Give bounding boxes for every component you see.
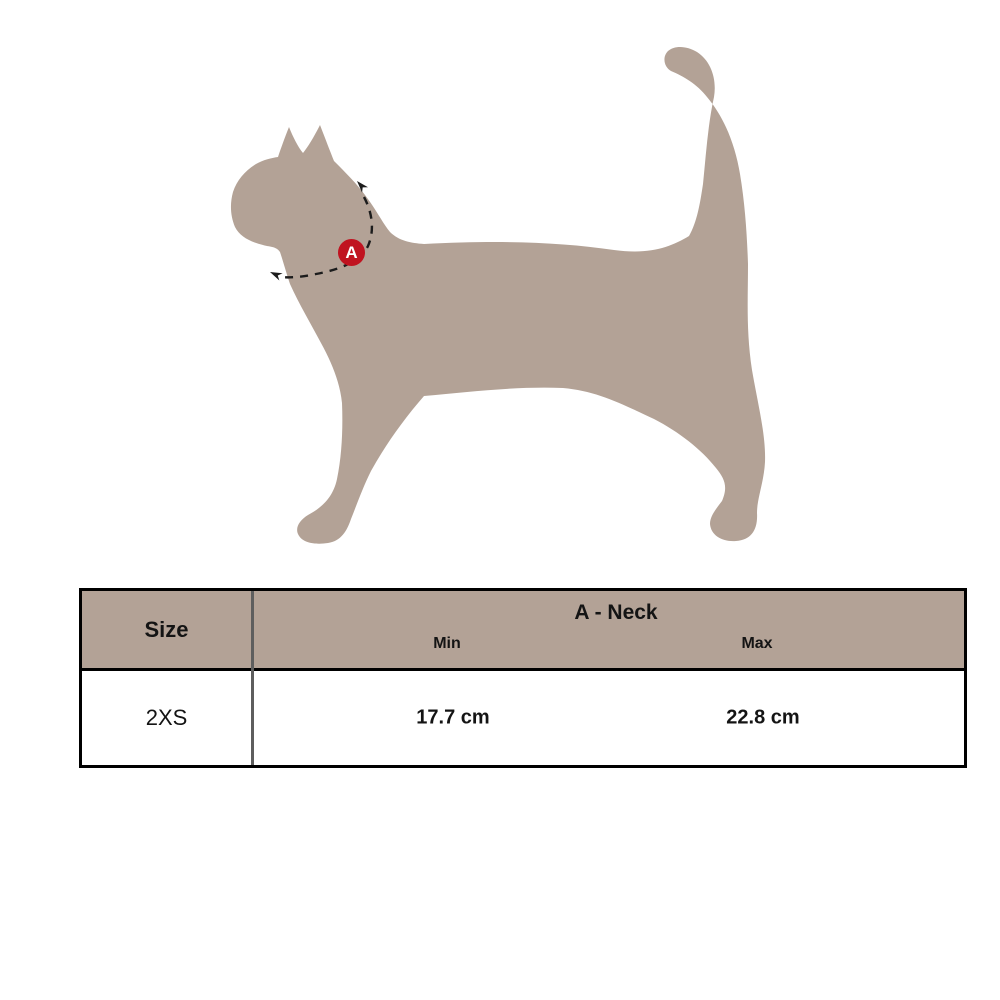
measure-arrow-left-icon — [268, 268, 282, 280]
size-chart-table: Size A - Neck Min Max 2XS 17.7 cm 22.8 c… — [79, 588, 967, 768]
cat-silhouette — [231, 47, 765, 544]
size-value: 2XS — [82, 671, 251, 765]
min-subheader: Min — [433, 635, 461, 653]
neck-max-value: 22.8 cm — [726, 707, 799, 730]
max-subheader: Max — [741, 635, 772, 653]
neck-marker-letter: A — [345, 244, 357, 261]
neck-marker-badge: A — [338, 239, 365, 266]
neck-min-value: 17.7 cm — [416, 707, 489, 730]
size-chart-header: Size A - Neck Min Max — [82, 591, 964, 671]
cat-measurement-diagram — [0, 0, 1000, 1000]
table-row: 2XS 17.7 cm 22.8 cm — [82, 671, 964, 765]
size-column-header: Size — [82, 591, 251, 674]
neck-column-header: A - Neck — [254, 601, 964, 625]
column-divider — [251, 591, 254, 765]
size-guide: A Size A - Neck Min Max 2XS 17.7 cm 22.8… — [0, 0, 1000, 1000]
